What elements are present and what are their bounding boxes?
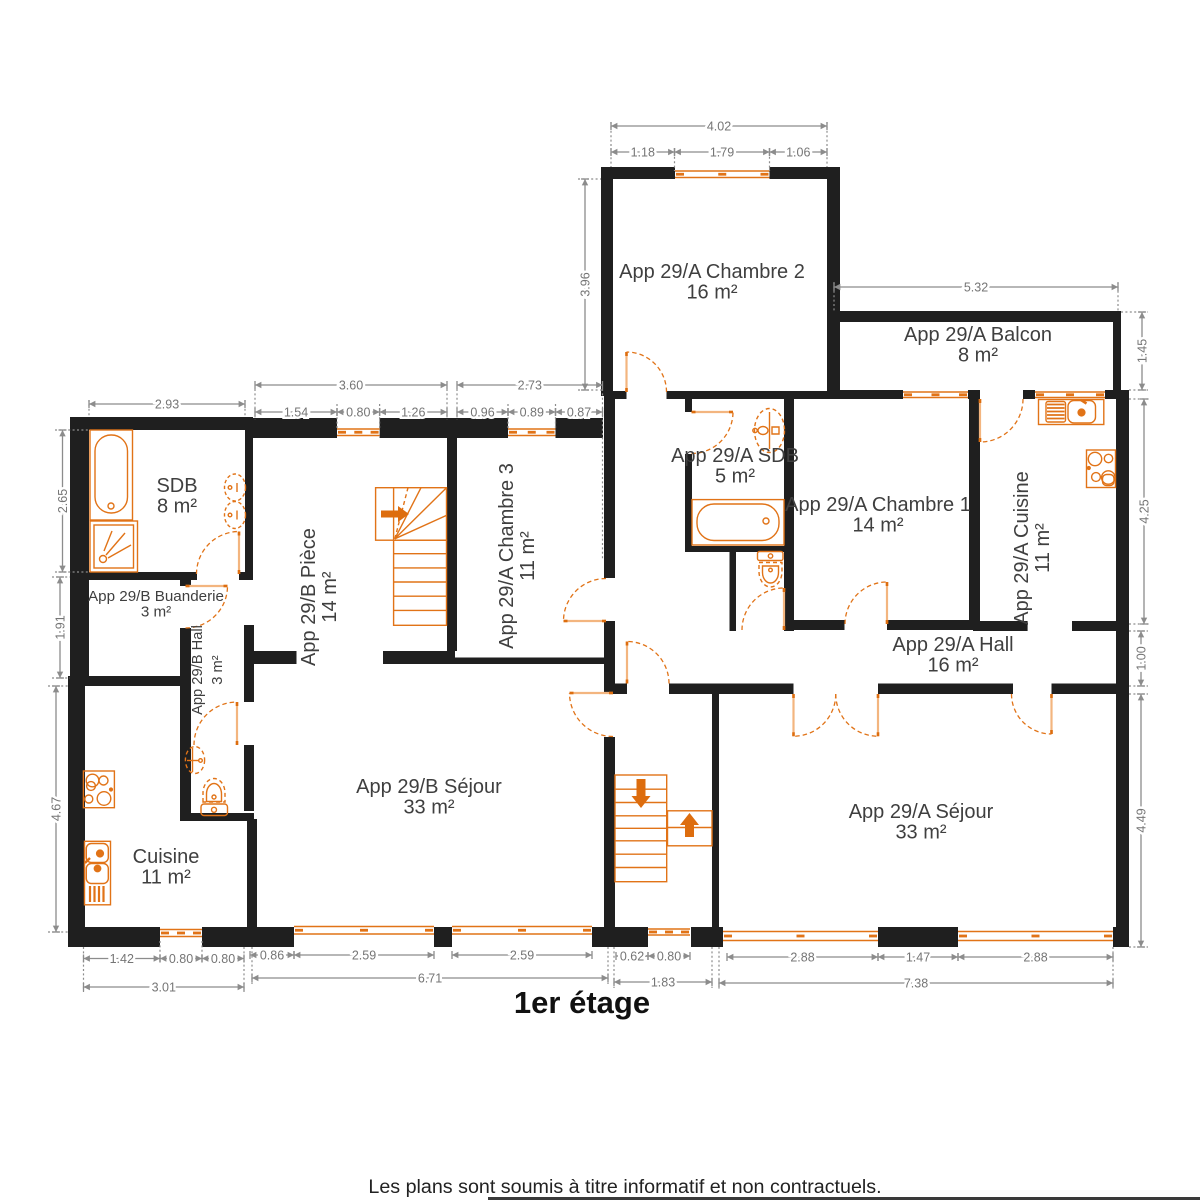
svg-text:7.38: 7.38 (904, 976, 928, 990)
svg-text:0.86: 0.86 (260, 948, 284, 962)
svg-text:5.32: 5.32 (964, 280, 988, 294)
svg-text:0.80: 0.80 (211, 952, 235, 966)
svg-text:2.59: 2.59 (352, 948, 376, 962)
svg-text:1.00: 1.00 (1134, 646, 1148, 670)
svg-text:33 m²: 33 m² (895, 822, 946, 844)
svg-text:11 m²: 11 m² (1032, 523, 1054, 573)
svg-text:SDB: SDB (156, 475, 197, 497)
svg-text:1.06: 1.06 (786, 145, 810, 159)
svg-text:App 29/A SDB: App 29/A SDB (671, 445, 799, 467)
svg-text:Cuisine: Cuisine (133, 846, 200, 868)
svg-text:11 m²: 11 m² (517, 531, 539, 581)
svg-text:App 29/A Chambre 1: App 29/A Chambre 1 (785, 494, 971, 516)
svg-text:4.02: 4.02 (707, 119, 731, 133)
svg-text:0.96: 0.96 (470, 405, 494, 419)
svg-text:1er étage: 1er étage (514, 985, 650, 1020)
svg-text:App 29/A Balcon: App 29/A Balcon (904, 324, 1052, 346)
svg-text:App 29/A Chambre 2: App 29/A Chambre 2 (619, 261, 805, 283)
svg-text:Les plans sont soumis à titre: Les plans sont soumis à titre informatif… (368, 1176, 881, 1198)
svg-text:0.80: 0.80 (169, 952, 193, 966)
svg-text:0.80: 0.80 (657, 949, 681, 963)
svg-text:App 29/B Pièce: App 29/B Pièce (298, 528, 320, 666)
svg-text:App 29/A Chambre 3: App 29/A Chambre 3 (496, 463, 518, 649)
svg-text:5 m²: 5 m² (715, 466, 755, 488)
svg-text:4.25: 4.25 (1137, 499, 1151, 523)
svg-text:0.87: 0.87 (567, 405, 591, 419)
svg-text:11 m²: 11 m² (141, 867, 191, 889)
svg-text:1.26: 1.26 (401, 405, 425, 419)
svg-text:4.67: 4.67 (49, 797, 63, 821)
svg-text:App 29/B Séjour: App 29/B Séjour (356, 776, 502, 798)
svg-text:16 m²: 16 m² (927, 655, 978, 677)
svg-text:8 m²: 8 m² (157, 496, 197, 518)
svg-text:3 m²: 3 m² (141, 604, 171, 621)
svg-text:App 29/A Séjour: App 29/A Séjour (849, 801, 994, 823)
svg-text:1.91: 1.91 (53, 615, 67, 639)
svg-text:App 29/B Buanderie: App 29/B Buanderie (88, 588, 224, 605)
svg-text:2.93: 2.93 (155, 397, 179, 411)
svg-text:2.65: 2.65 (56, 489, 70, 513)
svg-text:14 m²: 14 m² (319, 571, 341, 622)
svg-text:App 29/A Cuisine: App 29/A Cuisine (1011, 471, 1033, 624)
svg-text:3.01: 3.01 (152, 980, 176, 994)
svg-text:0.80: 0.80 (346, 405, 370, 419)
svg-text:0.62: 0.62 (620, 949, 644, 963)
svg-text:4.49: 4.49 (1134, 808, 1148, 832)
svg-text:1.83: 1.83 (651, 975, 675, 989)
svg-text:2.59: 2.59 (510, 948, 534, 962)
svg-text:8 m²: 8 m² (958, 345, 998, 367)
svg-text:1.47: 1.47 (906, 950, 930, 964)
svg-text:14 m²: 14 m² (852, 515, 903, 537)
svg-text:1.54: 1.54 (284, 405, 308, 419)
svg-text:3 m²: 3 m² (210, 655, 226, 684)
svg-text:App 29/A Hall: App 29/A Hall (892, 634, 1013, 656)
svg-text:0.89: 0.89 (520, 405, 544, 419)
svg-text:3.96: 3.96 (578, 272, 592, 296)
svg-text:3.60: 3.60 (339, 378, 363, 392)
svg-text:1.79: 1.79 (710, 145, 734, 159)
svg-text:2.88: 2.88 (1023, 950, 1047, 964)
svg-text:1.42: 1.42 (110, 952, 134, 966)
svg-text:1.45: 1.45 (1135, 339, 1149, 363)
svg-text:2.73: 2.73 (518, 378, 542, 392)
svg-text:16 m²: 16 m² (686, 282, 737, 304)
svg-text:2.88: 2.88 (790, 950, 814, 964)
svg-text:App 29/B Hall: App 29/B Hall (190, 625, 206, 715)
svg-text:33 m²: 33 m² (403, 797, 454, 819)
svg-text:1.18: 1.18 (631, 145, 655, 159)
svg-text:6.71: 6.71 (418, 971, 442, 985)
